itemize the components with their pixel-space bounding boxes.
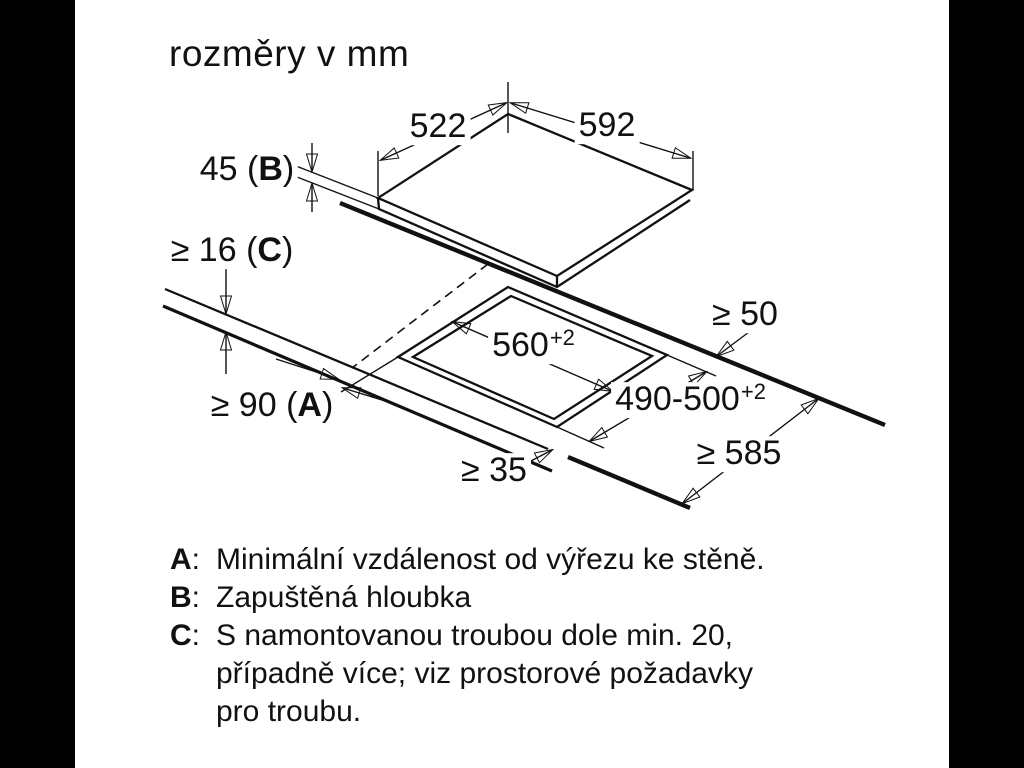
legend-notes: A: Minimální vzdálenost od výřezu ke stě… <box>170 541 870 731</box>
label-hob-depth-522: 522 <box>406 109 471 145</box>
label-worktop-thickness-16C: ≥ 16 (C) <box>167 233 298 269</box>
hob-side-band <box>378 198 690 287</box>
label-front-web-35: ≥ 35 <box>457 453 531 489</box>
left-letterbox-bar <box>0 0 75 768</box>
label-worktop-depth-585: ≥ 585 <box>693 436 786 472</box>
label-wall-clearance-90A: ≥ 90 (A) <box>207 388 338 424</box>
label-rear-clearance-50: ≥ 50 <box>708 297 782 333</box>
note-C: C: S namontovanou troubou dole min. 20, … <box>170 617 870 731</box>
note-A: A: Minimální vzdálenost od výřezu ke stě… <box>170 541 870 579</box>
label-cutout-depth-490-500: 490-500+2 <box>611 382 769 418</box>
installation-diagram-page: rozměry v mm <box>0 0 1024 768</box>
dim-recess-depth <box>296 143 379 212</box>
worktop-cutout <box>398 287 716 448</box>
label-recess-depth-45B: 45 (B) <box>196 152 298 188</box>
note-B: B: Zapuštěná hloubka <box>170 579 870 617</box>
right-letterbox-bar <box>949 0 1024 768</box>
label-cutout-width-560: 560+2 <box>488 328 578 364</box>
label-hob-width-592: 592 <box>575 108 640 144</box>
